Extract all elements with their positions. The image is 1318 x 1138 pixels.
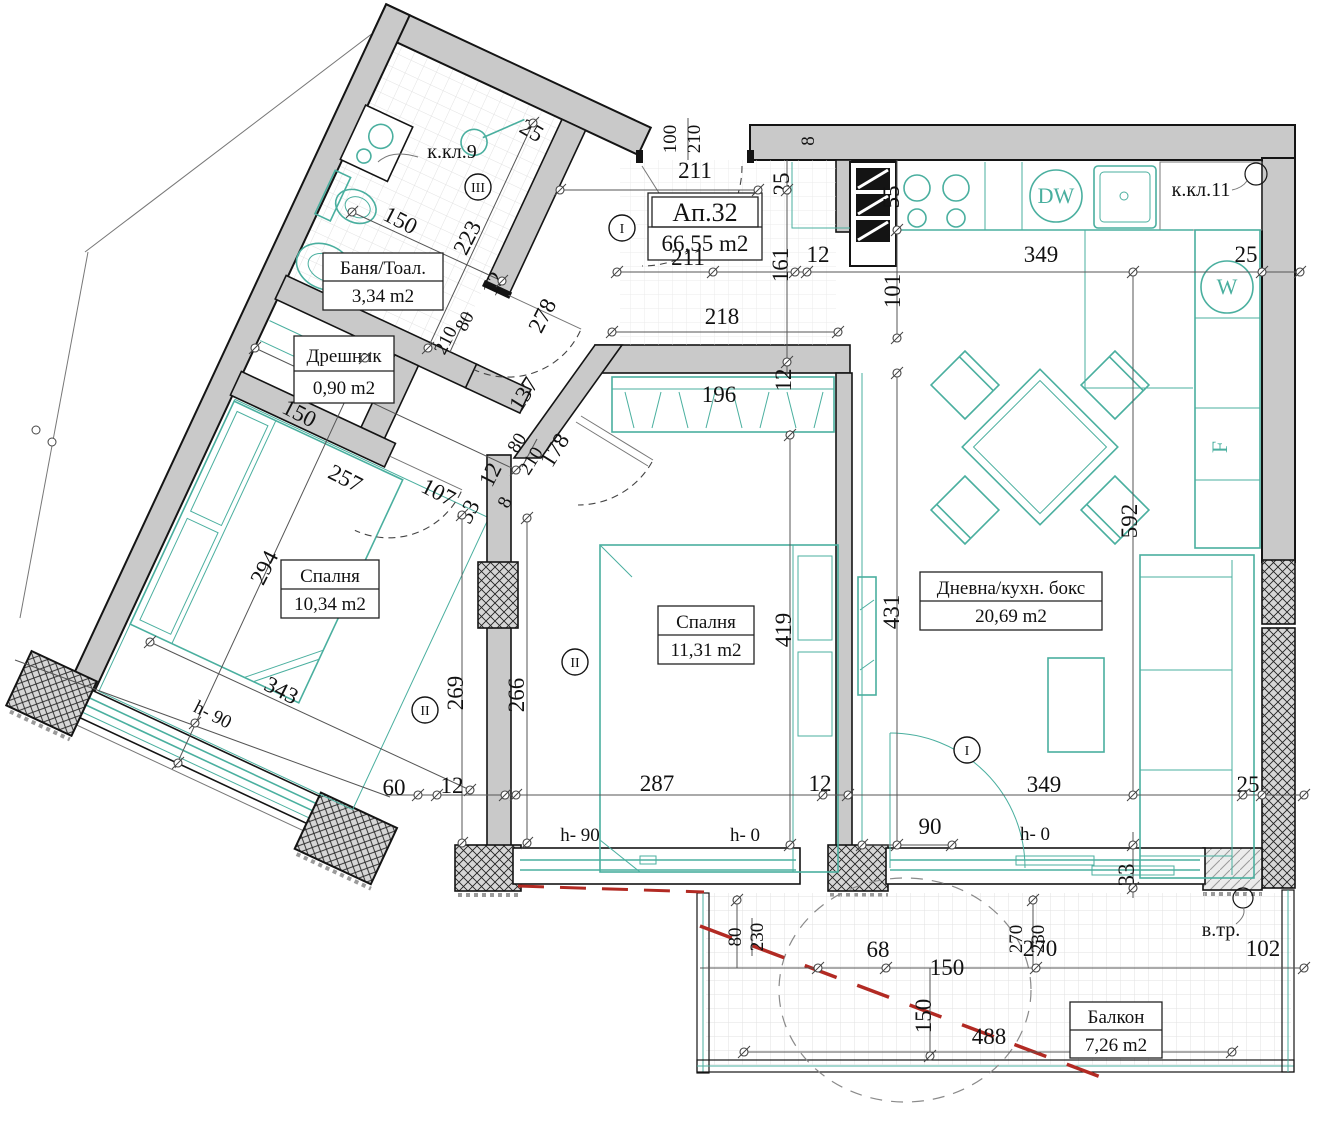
dining-table-icon [962, 369, 1118, 525]
dimension-label: 419 [771, 613, 796, 648]
shaft-label-vtr: в.тр. [1202, 919, 1240, 941]
dimension-label: 101 [880, 274, 905, 309]
chair-icon [931, 351, 999, 419]
dimension-label: 8 [798, 136, 819, 146]
room-area: 3,34 m2 [352, 286, 414, 307]
dimension-label: 33 [452, 496, 485, 528]
shaft-label-k11: к.кл.11 [1172, 179, 1231, 201]
dimension-label: 210 [684, 125, 705, 154]
dimension-label: 150 [930, 955, 965, 980]
coffee-table-icon [1048, 658, 1104, 752]
dimension-label: 211 [671, 245, 705, 270]
dimension-label: 211 [678, 158, 712, 183]
dimension-label: 349 [1024, 242, 1059, 267]
dimension-label: 80 [725, 928, 746, 947]
room-label-balcony: Балкон 7,26 m2 [1070, 1002, 1162, 1058]
bedroom2-top-wall [595, 345, 850, 373]
room-name: Дрешник [306, 346, 382, 367]
right-column [1262, 560, 1295, 624]
dimension-label: 266 [504, 678, 529, 713]
bedroom2-window-band [513, 848, 800, 884]
dimension-label: h- 90 [190, 697, 235, 734]
room-name: Дневна/кухн. бокс [937, 578, 1085, 599]
dimension-label: 12 [441, 773, 464, 798]
rotated-wing [1, 0, 712, 889]
apartment-label: Ап.32 66,55 m2 [648, 193, 762, 260]
dimension-label: h- 90 [560, 825, 600, 846]
top-wall [750, 125, 1295, 160]
room-area: 0,90 m2 [313, 378, 375, 399]
apartment-number: Ап.32 [672, 198, 737, 227]
dimension-label: 488 [972, 1024, 1007, 1049]
right-wall [1262, 158, 1295, 562]
dimension-label: 12 [771, 369, 796, 392]
dimension-label: 269 [443, 676, 468, 711]
chair-icon [931, 476, 999, 544]
kitchen-sink-icon [1094, 166, 1156, 228]
bed-icon [600, 545, 838, 872]
dishwasher-icon: DW [1030, 170, 1082, 222]
room-label-bathroom: Баня/Тоал. 3,34 m2 [323, 253, 443, 310]
dimension-label: 12 [807, 242, 830, 267]
room-area: 7,26 m2 [1085, 1035, 1147, 1056]
axis-marker-label: II [570, 656, 580, 671]
facade-column [828, 845, 888, 891]
room-label-bedroom1: Спалня 10,34 m2 [281, 560, 379, 618]
tv-unit-icon [858, 577, 876, 695]
red-section-line2 [518, 886, 704, 892]
window-sill [58, 716, 334, 844]
bedroom2-door-arc [578, 462, 652, 505]
dimension-label: h- 0 [1020, 824, 1050, 845]
room-name: Баня/Тоал. [340, 258, 426, 279]
dimension-label: 68 [867, 937, 890, 962]
room-name: Спалня [300, 566, 360, 587]
bedrooms-divider-wall [487, 455, 511, 848]
dimension-label: 431 [879, 595, 904, 630]
facade-column [455, 845, 521, 891]
washer-icon: W [1201, 261, 1253, 313]
dimension-label: 25 [1235, 242, 1258, 267]
axis-marker-label: I [965, 744, 970, 759]
dimension-label: 55 [879, 186, 904, 209]
shaft-label-k9: к.кл.9 [427, 141, 476, 163]
electrical-cabinet-icon [850, 162, 896, 266]
dimension-label: 592 [1117, 504, 1142, 539]
dimension-label: h- 0 [730, 825, 760, 846]
dimension-label: 230 [747, 923, 768, 952]
cooktop-icon [904, 175, 969, 227]
axis-marker-label: II [420, 704, 430, 719]
room-area: 10,34 m2 [294, 594, 366, 615]
dimension-label: 349 [1027, 772, 1062, 797]
floor-plan-canvas: DW W F [0, 0, 1318, 1138]
chair-icon [1081, 351, 1149, 419]
dimension-label: 257 [324, 459, 366, 497]
dimension-label: 150 [911, 999, 936, 1034]
dimension-label: 33 [1114, 864, 1139, 887]
dimension-label: 90 [919, 814, 942, 839]
room-label-bedroom2: Спалня 11,31 m2 [658, 606, 754, 664]
axis-marker-label: III [471, 181, 485, 196]
k11-pointer [1232, 181, 1247, 190]
room-area: 11,31 m2 [670, 640, 741, 661]
sofa-icon [1140, 555, 1254, 878]
dimension-label: 294 [245, 546, 283, 589]
dimension-label: 287 [640, 771, 675, 796]
dimension-label: 218 [705, 304, 740, 329]
room-area: 20,69 m2 [975, 606, 1047, 627]
dimension-label: 196 [702, 382, 737, 407]
right-column [1262, 628, 1295, 888]
room-name: Спалня [676, 612, 736, 633]
dishwasher-label: DW [1038, 183, 1075, 208]
window-glazing [82, 712, 321, 824]
dimension-label: 102 [1246, 936, 1281, 961]
room-label-living: Дневна/кухн. бокс 20,69 m2 [920, 572, 1102, 630]
balcony [518, 878, 1294, 1102]
dimension-label: 278 [523, 295, 561, 337]
room-name: Балкон [1088, 1007, 1145, 1028]
bedroom2-door-leaf [576, 416, 653, 466]
dimension-label: 270 [1023, 936, 1058, 961]
neighbour-boundary-line2 [20, 252, 88, 618]
washer-label: W [1217, 274, 1238, 299]
dimension-label: 100 [660, 125, 681, 154]
room-label-closet: Дрешник 0,90 m2 [294, 336, 394, 403]
fridge-label: F [1207, 441, 1232, 453]
axis-marker-label: I [620, 222, 625, 237]
divider-column [478, 562, 518, 628]
dimension-label: 60 [383, 775, 406, 800]
